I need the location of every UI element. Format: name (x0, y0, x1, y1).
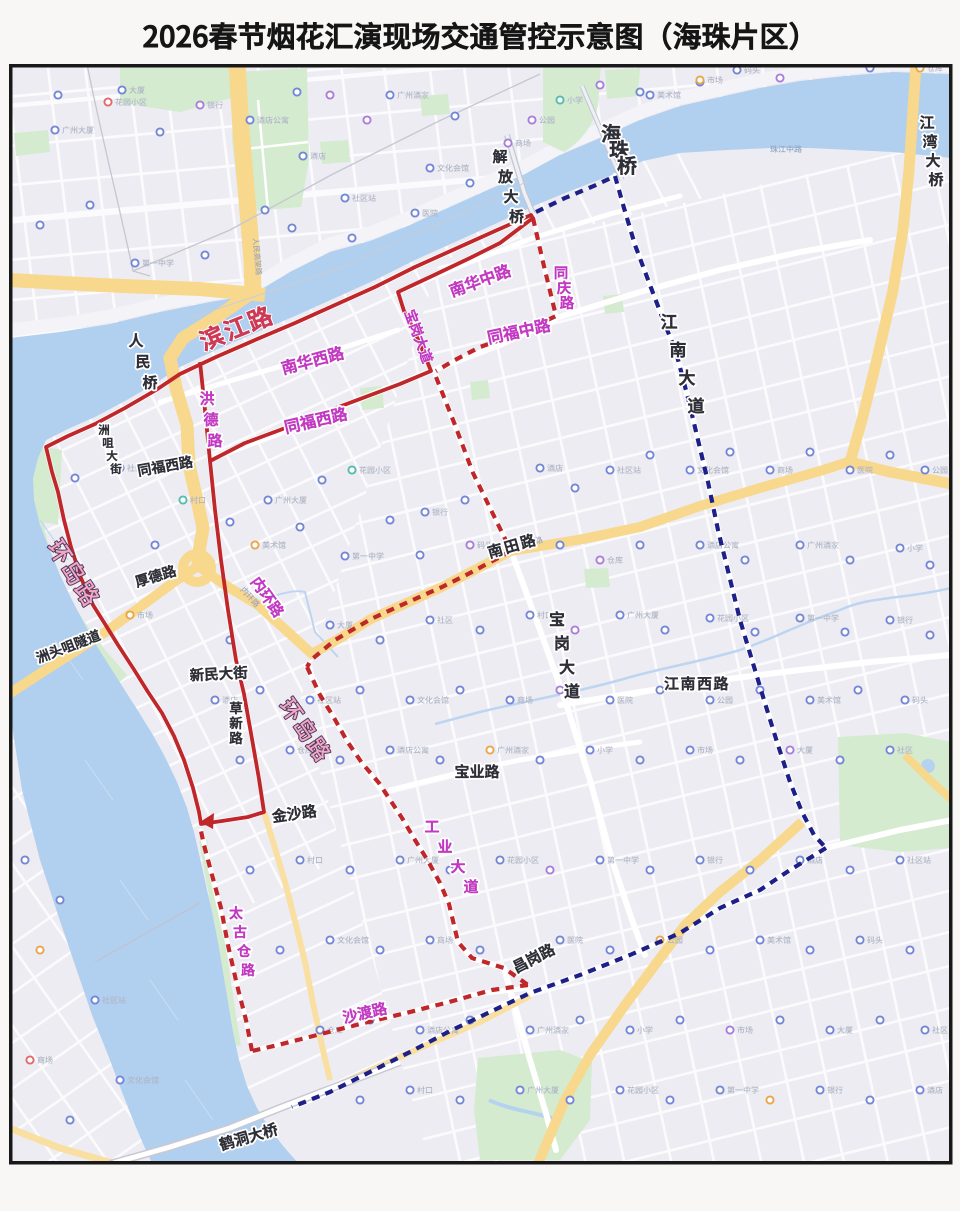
svg-text:社区站: 社区站 (102, 995, 126, 1006)
svg-text:酒店: 酒店 (927, 1085, 943, 1096)
svg-text:湾: 湾 (921, 131, 937, 152)
svg-text:文化会馆: 文化会馆 (417, 695, 449, 706)
svg-text:大: 大 (450, 856, 465, 877)
svg-text:文化会馆: 文化会馆 (437, 163, 469, 174)
svg-text:医院: 医院 (617, 695, 633, 706)
svg-text:桥: 桥 (617, 150, 638, 179)
svg-text:商场: 商场 (37, 1055, 53, 1066)
svg-text:第一中学: 第一中学 (607, 855, 639, 866)
svg-text:桥: 桥 (927, 169, 944, 190)
svg-text:银行: 银行 (432, 507, 448, 518)
svg-text:岗: 岗 (554, 630, 570, 654)
svg-text:码头: 码头 (912, 695, 928, 706)
svg-text:第一中学: 第一中学 (352, 551, 384, 562)
svg-text:商场: 商场 (437, 935, 453, 946)
svg-text:文化会馆: 文化会馆 (337, 935, 369, 946)
svg-text:道: 道 (564, 678, 580, 702)
svg-text:文化会馆: 文化会馆 (697, 465, 729, 476)
svg-text:珠江中路: 珠江中路 (770, 144, 802, 155)
svg-text:美术馆: 美术馆 (657, 90, 681, 101)
svg-text:大: 大 (503, 186, 518, 207)
svg-text:社区站: 社区站 (352, 193, 376, 204)
svg-text:大厦: 大厦 (797, 745, 813, 756)
svg-text:德: 德 (202, 409, 218, 430)
svg-text:仓: 仓 (236, 941, 252, 961)
svg-text:人: 人 (127, 330, 144, 351)
svg-text:古: 古 (233, 922, 247, 942)
svg-text:银行: 银行 (827, 1085, 843, 1096)
svg-text:南: 南 (670, 336, 687, 361)
svg-text:江南西路: 江南西路 (664, 673, 730, 694)
svg-text:公园: 公园 (717, 695, 733, 706)
svg-text:商场: 商场 (515, 138, 531, 149)
svg-text:市场: 市场 (737, 1025, 753, 1036)
svg-text:桥: 桥 (508, 206, 525, 227)
svg-text:酒店: 酒店 (310, 151, 326, 162)
svg-text:文化会馆: 文化会馆 (127, 1075, 159, 1086)
svg-text:道: 道 (688, 392, 705, 417)
svg-text:市场: 市场 (707, 75, 723, 86)
svg-text:第一中学: 第一中学 (807, 613, 839, 624)
svg-text:花园小区: 花园小区 (507, 855, 539, 866)
svg-text:新民大街: 新民大街 (189, 661, 249, 685)
svg-text:小学: 小学 (637, 1025, 653, 1036)
svg-text:大: 大 (925, 150, 940, 171)
svg-text:广州酒家: 广州酒家 (537, 1025, 569, 1036)
svg-text:小学: 小学 (907, 543, 923, 554)
svg-text:酒店公寓: 酒店公寓 (257, 115, 289, 126)
svg-text:广州大厦: 广州大厦 (527, 1085, 559, 1096)
svg-text:花园小区: 花园小区 (627, 1085, 659, 1096)
svg-text:小学: 小学 (597, 745, 613, 756)
svg-text:仓库: 仓库 (607, 555, 623, 566)
svg-text:大: 大 (558, 654, 575, 678)
svg-text:公园: 公园 (932, 465, 948, 476)
svg-text:小学: 小学 (567, 95, 583, 106)
svg-text:江: 江 (919, 112, 934, 133)
svg-text:银行: 银行 (897, 615, 913, 626)
svg-text:码头: 码头 (867, 935, 883, 946)
svg-text:大厦: 大厦 (837, 1025, 853, 1036)
svg-text:社区: 社区 (897, 745, 913, 756)
svg-text:洪: 洪 (199, 388, 214, 409)
svg-text:花园小区: 花园小区 (359, 465, 391, 476)
svg-text:路: 路 (229, 727, 243, 747)
svg-text:太: 太 (228, 903, 244, 923)
svg-text:市场: 市场 (697, 745, 713, 756)
svg-text:医院: 医院 (422, 208, 438, 219)
svg-text:医院: 医院 (857, 465, 873, 476)
svg-text:村口: 村口 (190, 495, 206, 506)
svg-text:大厦: 大厦 (129, 85, 145, 96)
svg-text:公园: 公园 (539, 115, 555, 126)
svg-text:商场: 商场 (777, 465, 793, 476)
svg-text:广州酒家: 广州酒家 (497, 745, 529, 756)
svg-text:村口: 村口 (307, 855, 323, 866)
svg-text:路: 路 (241, 960, 256, 980)
svg-text:第一中学: 第一中学 (142, 258, 174, 269)
svg-text:路: 路 (207, 430, 223, 451)
svg-text:酒店: 酒店 (547, 463, 563, 474)
svg-text:广州大厦: 广州大厦 (627, 610, 659, 621)
svg-text:社区站: 社区站 (617, 465, 641, 476)
svg-text:民: 民 (135, 351, 150, 372)
svg-text:大: 大 (679, 364, 696, 389)
svg-text:社区: 社区 (437, 615, 453, 626)
svg-text:桥: 桥 (141, 372, 158, 393)
svg-text:美术馆: 美术馆 (767, 935, 791, 946)
svg-text:第一中学: 第一中学 (727, 1085, 759, 1096)
svg-text:广州大厦: 广州大厦 (275, 495, 307, 506)
svg-text:广州大厦: 广州大厦 (62, 125, 94, 136)
svg-text:酒店公寓: 酒店公寓 (397, 745, 429, 756)
svg-text:江: 江 (661, 308, 678, 333)
svg-text:市场: 市场 (137, 610, 153, 621)
svg-text:医院: 医院 (567, 935, 583, 946)
svg-text:银行: 银行 (207, 100, 223, 111)
svg-text:广州酒家: 广州酒家 (397, 90, 429, 101)
svg-text:花园小区: 花园小区 (115, 97, 147, 108)
svg-text:美术馆: 美术馆 (262, 540, 286, 551)
svg-text:2026春节烟花汇演现场交通管控示意图（海珠片区）: 2026春节烟花汇演现场交通管控示意图（海珠片区） (142, 14, 817, 56)
svg-text:美术馆: 美术馆 (817, 695, 841, 706)
svg-text:宝业路: 宝业路 (454, 761, 500, 782)
svg-text:路: 路 (560, 292, 575, 313)
svg-text:村口: 村口 (417, 1085, 433, 1096)
svg-text:商场: 商场 (517, 695, 533, 706)
svg-text:业: 业 (437, 836, 452, 857)
svg-text:社区: 社区 (932, 1025, 948, 1036)
svg-text:解: 解 (491, 146, 507, 167)
svg-text:街: 街 (109, 461, 122, 477)
svg-text:放: 放 (497, 166, 514, 187)
svg-text:社区站: 社区站 (907, 855, 931, 866)
svg-text:道: 道 (463, 876, 478, 897)
svg-text:宝: 宝 (549, 606, 565, 630)
svg-text:花园小区: 花园小区 (717, 613, 749, 624)
svg-text:工: 工 (424, 816, 439, 837)
svg-text:广州酒家: 广州酒家 (807, 540, 839, 551)
svg-text:银行: 银行 (707, 855, 723, 866)
